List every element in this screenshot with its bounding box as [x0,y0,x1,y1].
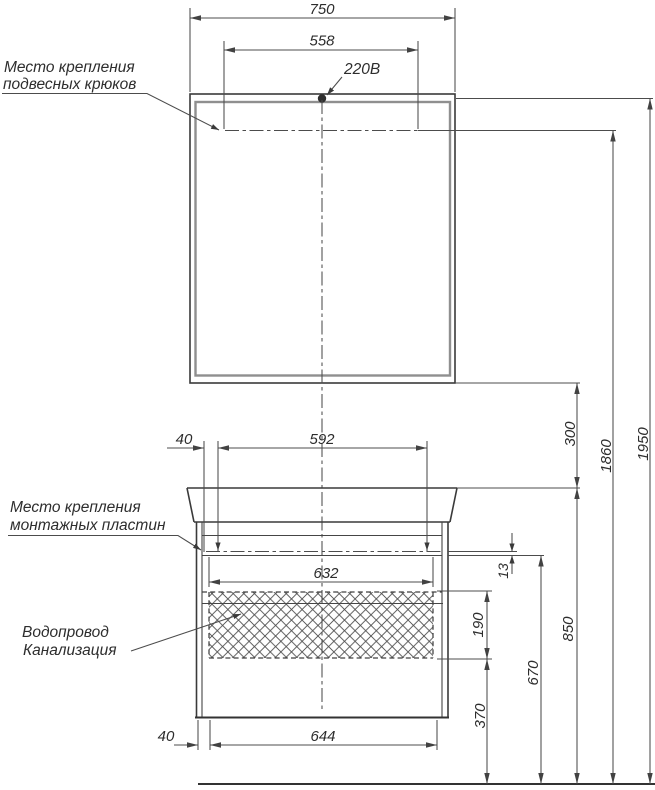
water-callout: Водопровод Канализация [22,614,241,659]
dim-text-1860: 1860 [598,439,615,473]
basin-left-edge [187,488,194,522]
dim-text-40-top: 40 [176,431,193,448]
utility-zone-hatch [202,592,442,658]
water-label-line1: Водопровод [22,624,109,641]
power-leader-line [327,77,342,95]
basin-right-edge [450,488,457,522]
dim-text-13: 13 [495,563,511,579]
hooks-label-line2: подвесных крюков [3,76,136,93]
dim-text-190: 190 [470,612,487,638]
hooks-label-line1: Место крепления [4,59,135,76]
installation-drawing-page: 750 558 220В 40 592 632 40 644 [0,0,655,790]
dim-text-1950: 1950 [635,427,652,461]
hooks-callout: Место крепления подвесных крюков [2,59,219,130]
dim-text-592: 592 [309,431,335,448]
dimensions-632: 632 [209,557,433,587]
dim-text-670: 670 [525,660,542,686]
dimensions-bottom: 40 644 [158,720,437,750]
hatch-pattern-area [209,592,433,658]
dim-text-40-bottom: 40 [158,728,175,745]
dim-text-632: 632 [313,565,339,582]
plates-leader-line [8,536,201,551]
plates-label-line1: Место крепления [10,499,141,516]
dim-text-558: 558 [309,33,335,50]
installation-drawing: 750 558 220В 40 592 632 40 644 [0,0,655,790]
power-callout: 220В [327,61,380,95]
plates-callout: Место крепления монтажных пластин [8,499,201,550]
water-label-line2: Канализация [23,642,117,659]
dim-text-750: 750 [309,1,335,18]
dimensions-middle: 40 592 [167,431,427,552]
plates-label-line2: монтажных пластин [10,517,166,534]
callout-labels: Место крепления подвесных крюков Место к… [2,59,241,659]
mirror-inner-frame [196,102,451,376]
dim-text-300: 300 [562,421,579,447]
hooks-leader-line [2,94,219,131]
dim-text-644: 644 [310,728,335,745]
dimensions-right: 1950 1860 300 850 670 13 190 370 [418,99,653,785]
dim-text-370: 370 [472,703,489,729]
dim-text-850: 850 [560,616,577,642]
power-label: 220В [343,61,380,78]
